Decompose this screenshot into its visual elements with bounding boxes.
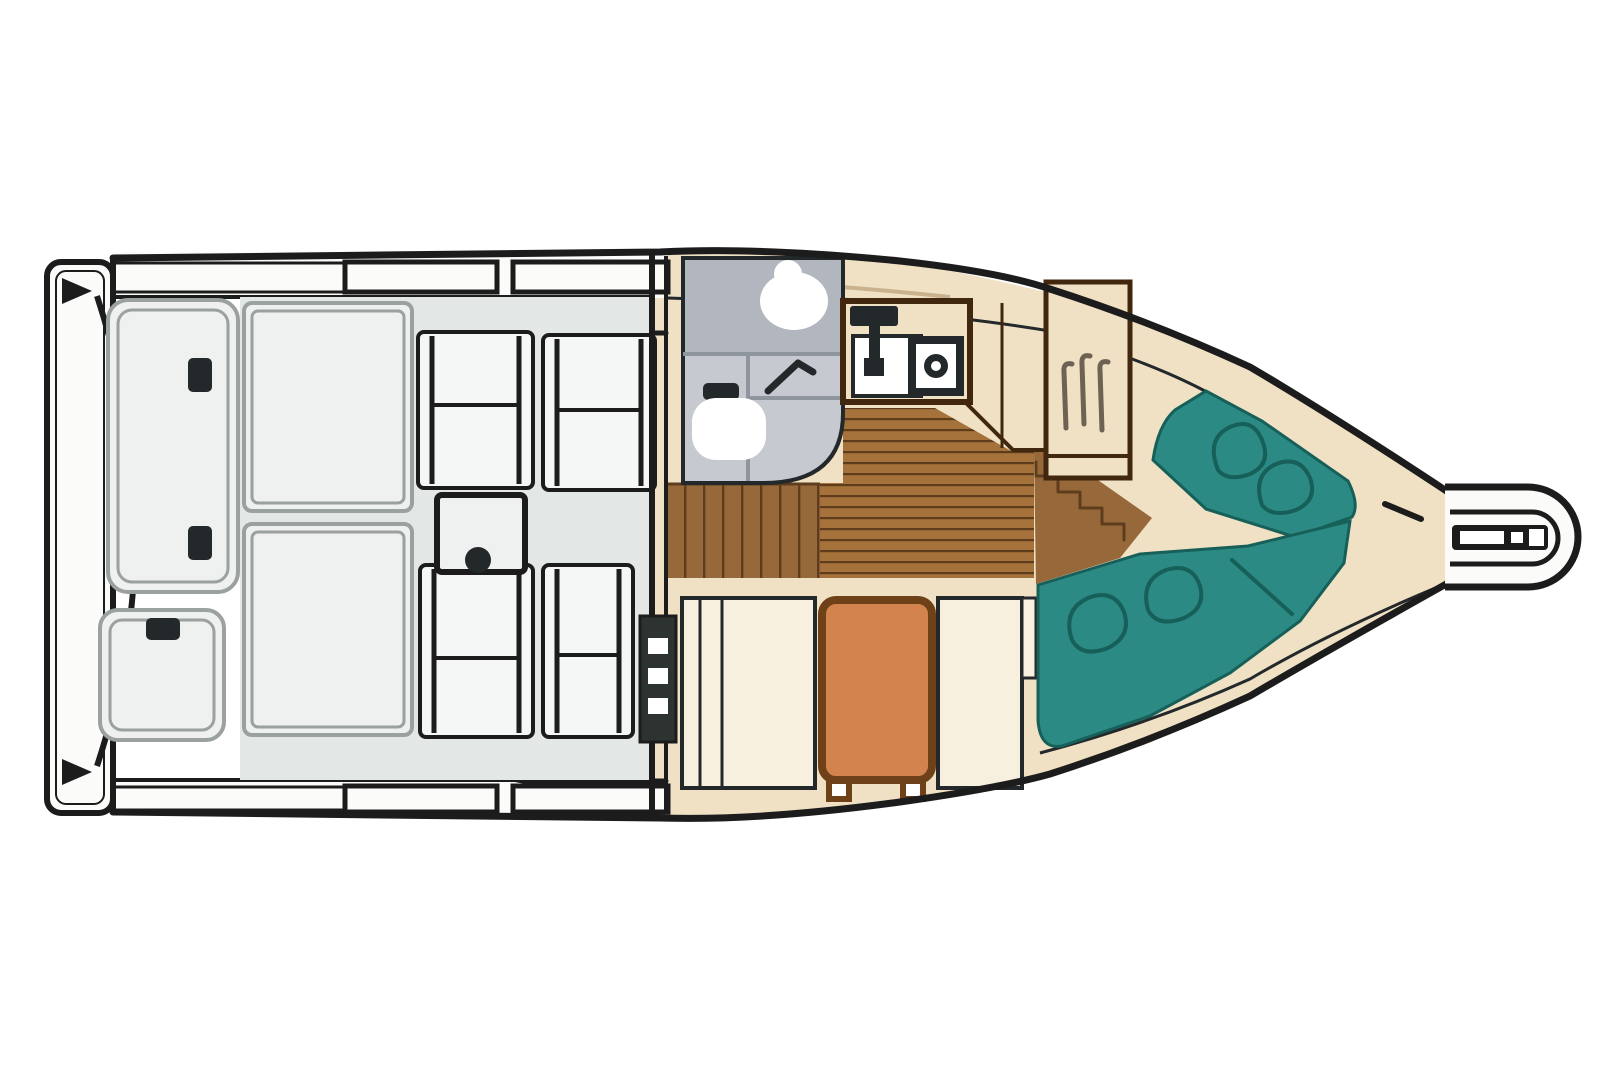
locker-panel-aft <box>244 303 412 511</box>
head <box>683 258 843 483</box>
anchor-roller-block <box>1529 529 1544 546</box>
door-slot <box>648 698 668 714</box>
hatch-latch-icon <box>188 358 212 392</box>
stbd-deck-hatch-fwd <box>513 786 668 812</box>
hatch-outer <box>108 300 238 592</box>
boat-floor-plan <box>0 0 1620 1080</box>
cockpit-table <box>437 495 525 573</box>
seat-frame <box>418 332 533 488</box>
anchor-roller-slot <box>1460 531 1504 544</box>
stove-icon <box>908 336 964 396</box>
anchor-roller <box>1452 525 1548 550</box>
engine-hatch-small <box>100 610 224 740</box>
floor-plan-canvas <box>0 0 1620 1080</box>
cockpit-seat-port-fwd <box>420 565 533 737</box>
cockpit-table-pedestal <box>465 547 491 573</box>
stern <box>47 256 238 814</box>
hatch-latch-icon <box>146 618 180 640</box>
cockpit-seat-stbd-aft <box>543 335 655 490</box>
seat-frame <box>420 565 533 737</box>
port-deck-hatch-fwd <box>513 262 668 292</box>
locker-panel-fwd <box>244 524 412 735</box>
cockpit <box>240 297 655 780</box>
dinette-bench-starboard-back <box>1022 598 1036 678</box>
stbd-deck-hatch-aft <box>345 786 497 812</box>
dinette-bench-port <box>682 598 815 788</box>
port-deck-hatch-aft <box>345 262 497 292</box>
door-slot <box>648 638 668 654</box>
companionway-door <box>640 616 676 742</box>
cabin-steps <box>668 483 820 578</box>
anchor-roller-pin <box>1511 532 1523 543</box>
hatch-latch-icon <box>188 526 212 560</box>
table-foot-inner <box>906 784 920 796</box>
dinette <box>682 598 1036 802</box>
dinette-bench-starboard <box>938 598 1022 788</box>
dinette-table <box>822 600 932 780</box>
door-slot <box>648 668 668 684</box>
engine-hatch-aft <box>108 300 238 592</box>
cockpit-seat-port-aft <box>418 332 533 488</box>
seat-frame <box>543 335 655 490</box>
table-foot-inner <box>832 784 846 796</box>
cockpit-seat-stbd-fwd <box>543 565 633 737</box>
